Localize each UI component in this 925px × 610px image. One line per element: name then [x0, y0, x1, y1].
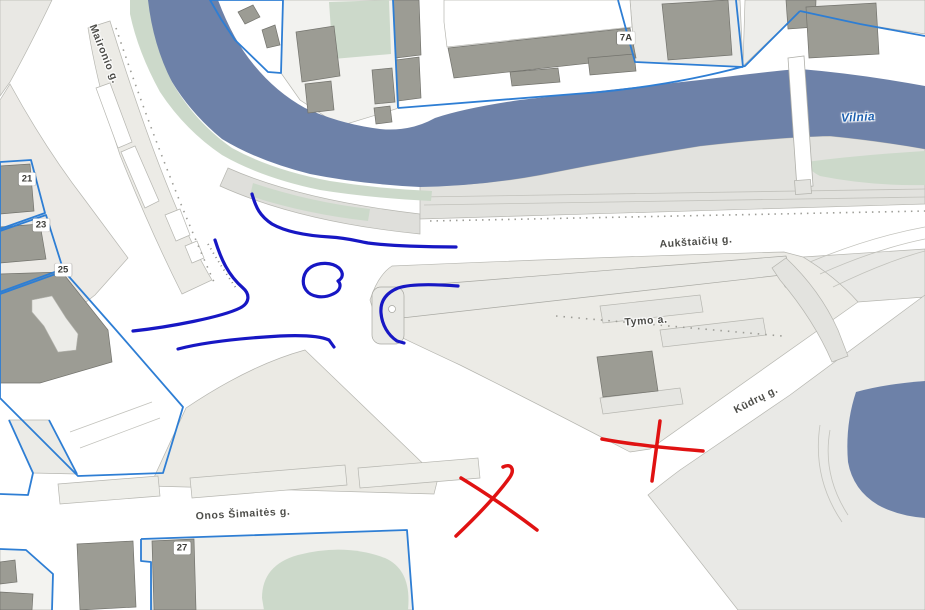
building-number-23: 23	[33, 219, 50, 232]
map-canvas[interactable]	[0, 0, 925, 610]
building-number-25: 25	[55, 264, 72, 277]
building-number-7a: 7A	[617, 32, 635, 45]
red-x-annotations	[456, 421, 703, 536]
river-label-vilnia: Vilnia	[841, 109, 876, 125]
building-number-21: 21	[19, 173, 36, 186]
bridge-landing	[795, 179, 812, 194]
map-viewport[interactable]: Maironio g. Aukštaičių g. Tymo a. Kūdrų …	[0, 0, 925, 610]
building-number-27: 27	[174, 542, 191, 555]
